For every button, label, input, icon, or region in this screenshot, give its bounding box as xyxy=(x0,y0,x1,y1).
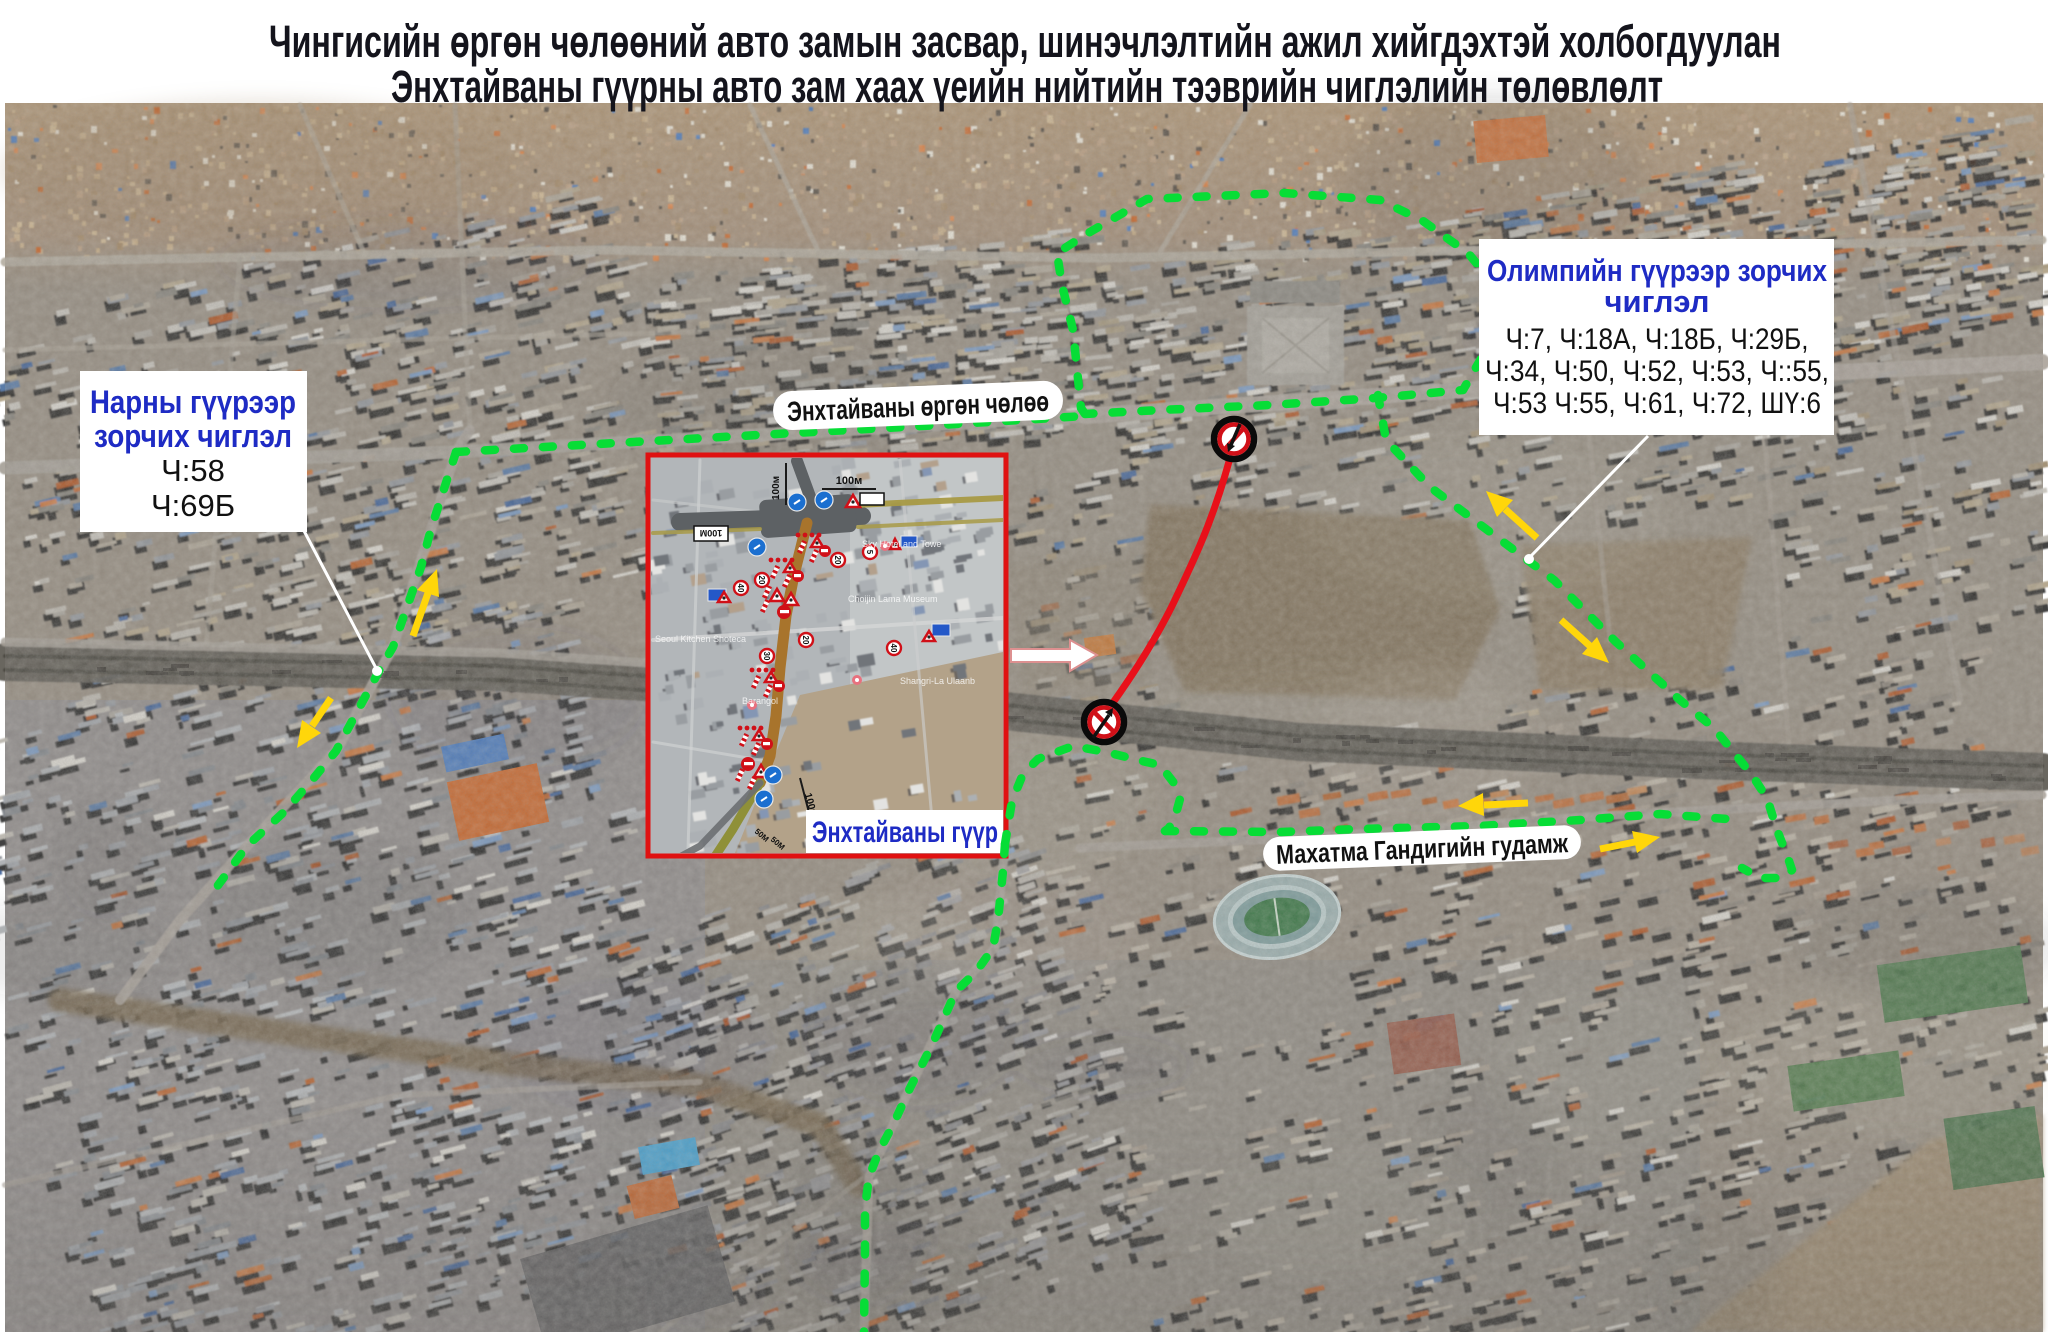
svg-text:зорчих чиглэл: зорчих чиглэл xyxy=(94,418,292,454)
svg-text:Ч:58: Ч:58 xyxy=(161,453,225,488)
svg-text:Barangol: Barangol xyxy=(742,696,778,706)
svg-text:чиглэл: чиглэл xyxy=(1605,284,1710,319)
svg-text:Ч:34, Ч:50, Ч:52, Ч:53, Ч::55,: Ч:34, Ч:50, Ч:52, Ч:53, Ч::55, xyxy=(1485,355,1829,388)
svg-text:20: 20 xyxy=(757,576,766,585)
svg-text:Чингисийн өргөн чөлөөний авто: Чингисийн өргөн чөлөөний авто замын засв… xyxy=(269,16,1781,67)
svg-text:20: 20 xyxy=(833,556,842,565)
svg-text:Ч:53 Ч:55, Ч:61, Ч:72, ШҮ:6: Ч:53 Ч:55, Ч:61, Ч:72, ШҮ:6 xyxy=(1493,387,1821,420)
svg-text:Энхтайваны гүүр: Энхтайваны гүүр xyxy=(812,816,998,849)
svg-text:5: 5 xyxy=(865,550,874,555)
svg-text:Ч:7, Ч:18А, Ч:18Б, Ч:29Б,: Ч:7, Ч:18А, Ч:18Б, Ч:29Б, xyxy=(1506,323,1809,356)
svg-text:Ч:69Б: Ч:69Б xyxy=(151,488,235,523)
svg-text:40: 40 xyxy=(889,644,898,653)
svg-text:100м: 100м xyxy=(771,476,782,500)
svg-text:Энхтайваны гүүрны авто зам хаа: Энхтайваны гүүрны авто зам хаах үеийн ни… xyxy=(391,61,1663,112)
svg-text:Seoul Kitchen Shoteca: Seoul Kitchen Shoteca xyxy=(655,634,746,644)
svg-text:Олимпийн гүүрээр зорчих: Олимпийн гүүрээр зорчих xyxy=(1487,253,1828,288)
svg-text:100M: 100M xyxy=(700,528,723,538)
svg-text:Choijin Lama Museum: Choijin Lama Museum xyxy=(848,594,938,604)
svg-text:30: 30 xyxy=(762,652,771,661)
svg-text:100м: 100м xyxy=(836,475,863,487)
svg-text:Нарны гүүрээр: Нарны гүүрээр xyxy=(90,384,296,420)
svg-text:20: 20 xyxy=(801,636,810,645)
svg-text:Shangri-La Ulaanb: Shangri-La Ulaanb xyxy=(900,676,975,686)
svg-text:40: 40 xyxy=(736,584,745,593)
svg-text:Sky Hotel and Towe: Sky Hotel and Towe xyxy=(862,539,941,549)
